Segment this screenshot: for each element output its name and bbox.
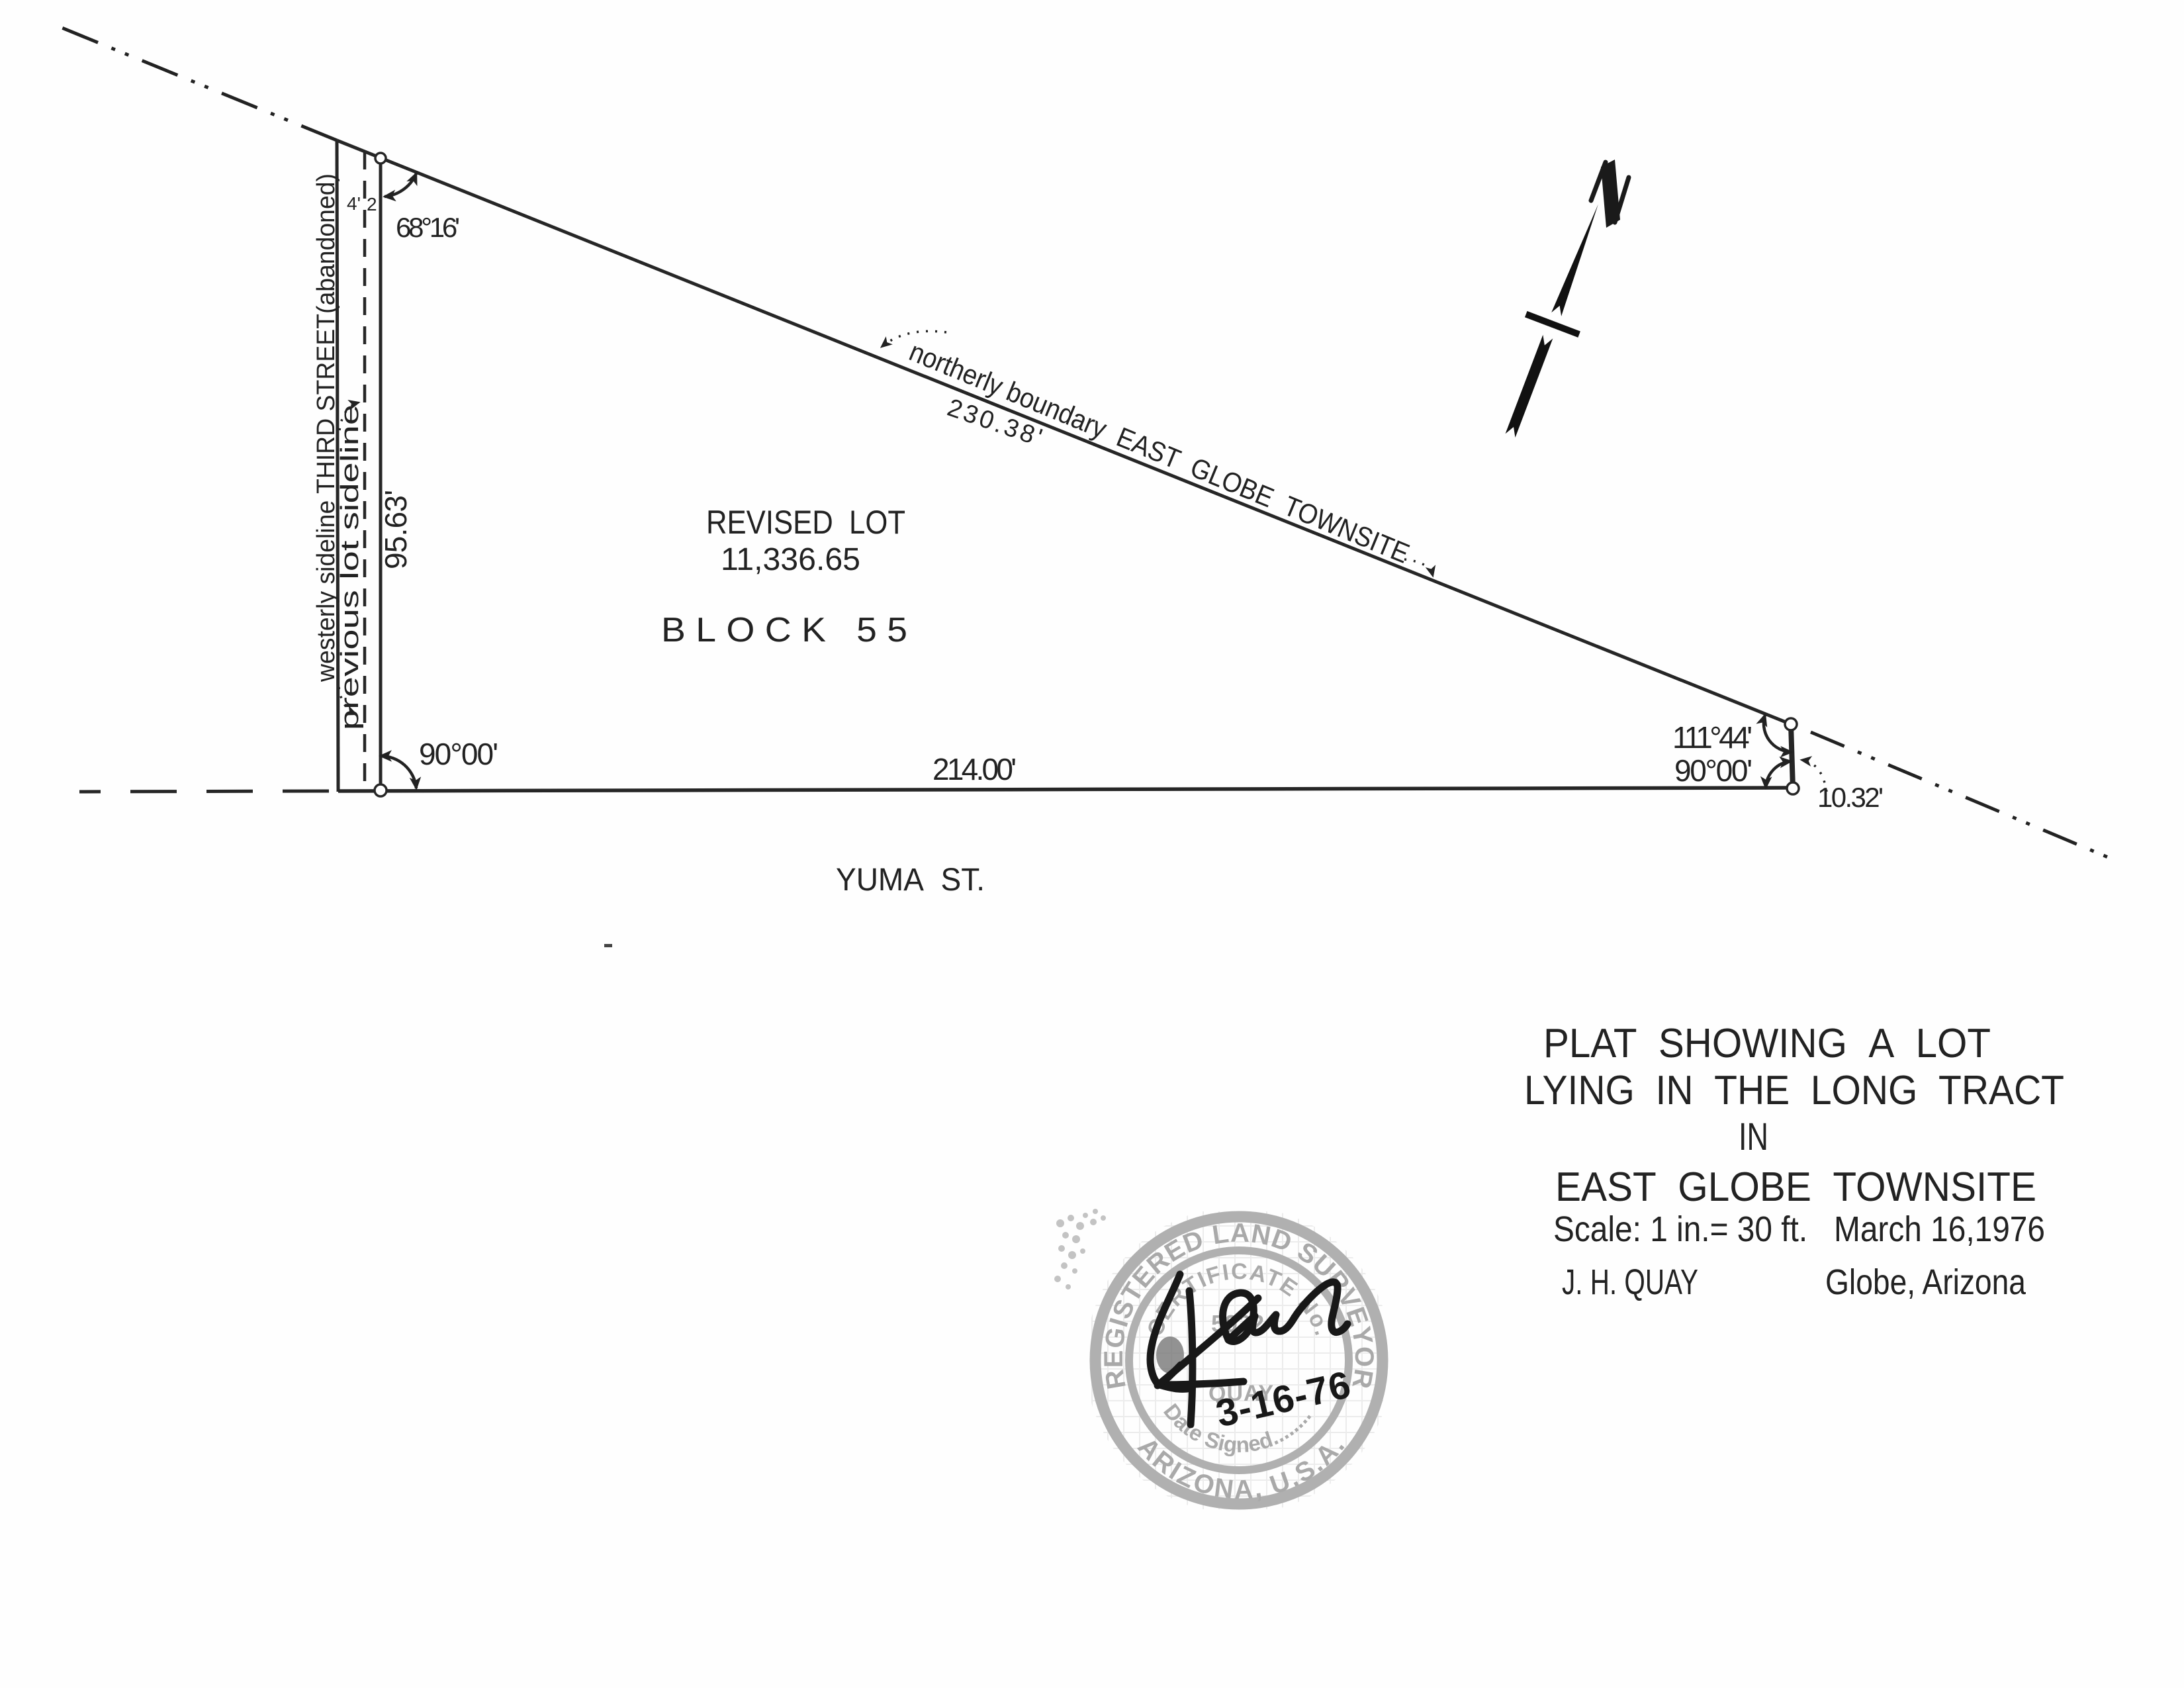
svg-text:90°00': 90°00' (419, 737, 498, 771)
svg-text:Scale: 1 in.= 30 ft. March 1: Scale: 1 in.= 30 ft. March 16,1976 (1553, 1209, 2045, 1249)
svg-text:Globe, Arizona: Globe, Arizona (1825, 1262, 2026, 1302)
svg-text:111°44': 111°44' (1672, 720, 1752, 755)
svg-text:11,336.65: 11,336.65 (721, 542, 860, 577)
svg-text:YUMA ST.: YUMA ST. (836, 863, 985, 898)
svg-text:214.00': 214.00' (933, 752, 1017, 786)
svg-text:4': 4' (347, 193, 361, 214)
svg-text:previous lot sideline: previous lot sideline (336, 404, 364, 730)
svg-text:90°00': 90°00' (1674, 753, 1752, 788)
svg-text:REVISED LOT: REVISED LOT (706, 504, 905, 541)
svg-text:IN: IN (1739, 1115, 1768, 1158)
svg-text:2: 2 (367, 194, 377, 214)
svg-text:LYING IN THE LONG TRACT: LYING IN THE LONG TRACT (1524, 1068, 2064, 1113)
svg-text:EAST GLOBE TOWNSITE: EAST GLOBE TOWNSITE (1555, 1164, 2036, 1210)
svg-text:J. H. QUAY: J. H. QUAY (1562, 1262, 1698, 1302)
svg-text:95.63': 95.63' (379, 490, 413, 569)
svg-text:B L O C K 5 5: B L O C K 5 5 (661, 611, 907, 649)
svg-text:10.32': 10.32' (1817, 782, 1884, 813)
svg-text:PLAT SHOWING A LOT: PLAT SHOWING A LOT (1543, 1021, 1991, 1066)
svg-text:68°16': 68°16' (396, 212, 460, 243)
